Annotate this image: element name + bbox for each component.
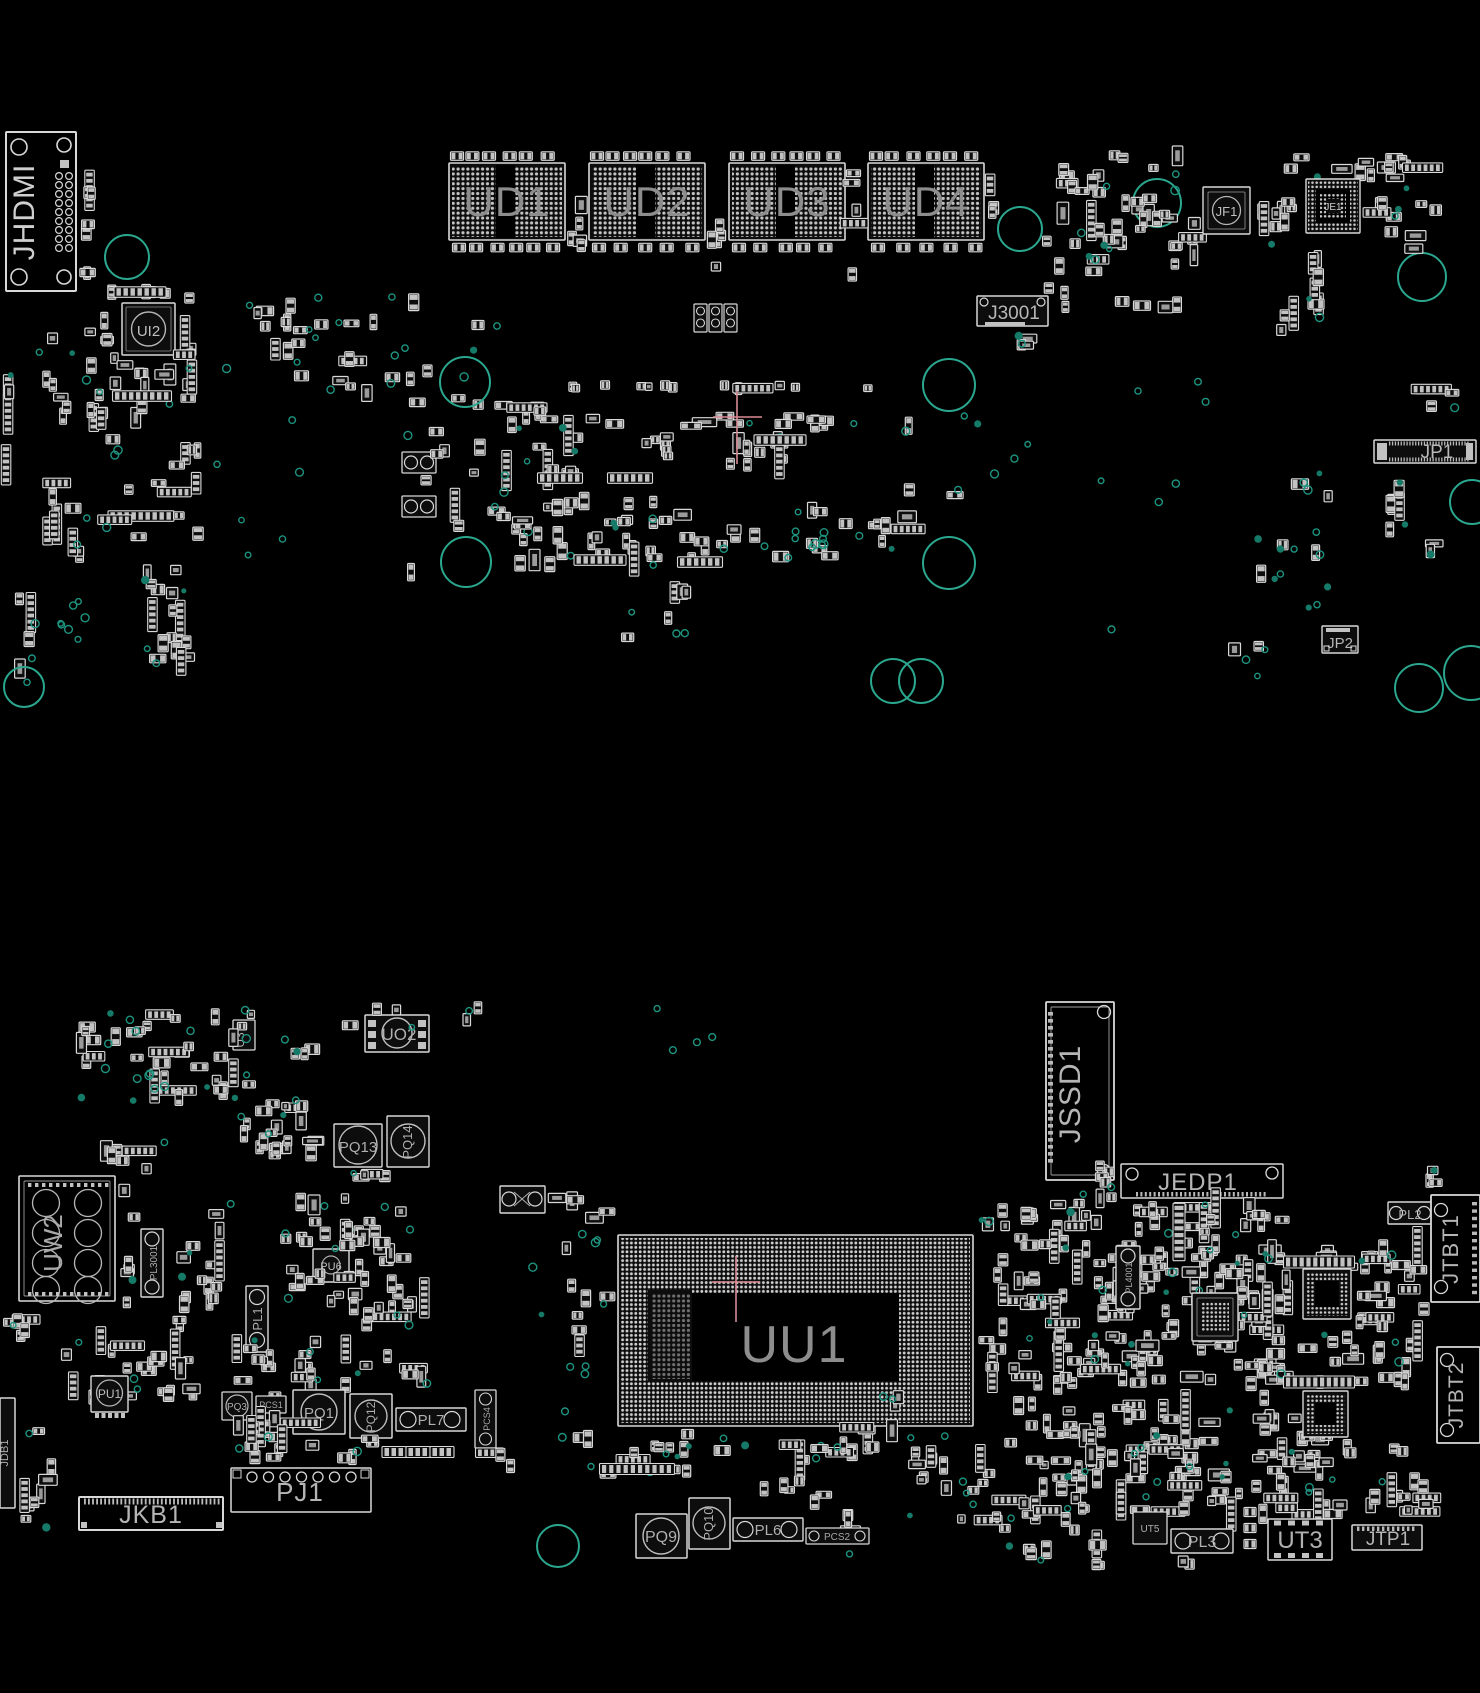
svg-text:J3001: J3001 <box>988 303 1040 324</box>
svg-text:PL7: PL7 <box>418 1412 445 1429</box>
svg-text:PQ3: PQ3 <box>227 1402 247 1413</box>
svg-text:UO2: UO2 <box>382 1025 417 1044</box>
svg-text:PU1: PU1 <box>98 1387 122 1401</box>
svg-text:PCS4: PCS4 <box>482 1407 492 1431</box>
svg-text:UU1: UU1 <box>740 1316 847 1374</box>
svg-text:UT3: UT3 <box>1277 1527 1322 1554</box>
svg-text:JHDMI: JHDMI <box>8 164 41 261</box>
svg-text:PQ13: PQ13 <box>339 1139 377 1156</box>
svg-text:PQ12: PQ12 <box>364 1401 378 1432</box>
svg-text:UD1: UD1 <box>463 178 550 225</box>
svg-text:JDB1: JDB1 <box>0 1440 11 1467</box>
svg-text:JF1: JF1 <box>1216 204 1238 219</box>
svg-text:PQ10: PQ10 <box>701 1507 716 1540</box>
svg-text:UD2: UD2 <box>603 178 690 225</box>
svg-text:PQ14: PQ14 <box>400 1125 415 1158</box>
svg-text:UT5: UT5 <box>1141 1524 1160 1535</box>
svg-text:PL2: PL2 <box>1398 1207 1421 1222</box>
svg-text:PQ9: PQ9 <box>645 1529 677 1546</box>
svg-text:JSSD1: JSSD1 <box>1054 1045 1087 1143</box>
svg-text:PL6: PL6 <box>755 1522 782 1539</box>
svg-text:JE1: JE1 <box>1324 202 1342 213</box>
svg-text:PCS2: PCS2 <box>824 1532 851 1543</box>
svg-text:UW2: UW2 <box>38 1214 68 1272</box>
svg-text:JTBT2: JTBT2 <box>1445 1362 1468 1429</box>
svg-text:JKB1: JKB1 <box>119 1501 183 1529</box>
svg-text:JTBT1: JTBT1 <box>1438 1214 1463 1284</box>
svg-text:JP2: JP2 <box>1327 635 1353 652</box>
svg-text:UD4: UD4 <box>882 178 969 225</box>
svg-text:JP1: JP1 <box>1421 442 1454 463</box>
svg-text:PJ1: PJ1 <box>276 1477 324 1507</box>
svg-text:UI2: UI2 <box>137 323 160 340</box>
svg-text:JEDP1: JEDP1 <box>1158 1169 1238 1196</box>
svg-text:PL4001: PL4001 <box>1124 1262 1134 1293</box>
svg-text:PL3001: PL3001 <box>149 1245 160 1280</box>
svg-text:UD3: UD3 <box>743 178 830 225</box>
svg-text:JTP1: JTP1 <box>1366 1529 1410 1550</box>
svg-text:PL1: PL1 <box>250 1307 265 1330</box>
svg-text:PL3: PL3 <box>1188 1534 1217 1551</box>
